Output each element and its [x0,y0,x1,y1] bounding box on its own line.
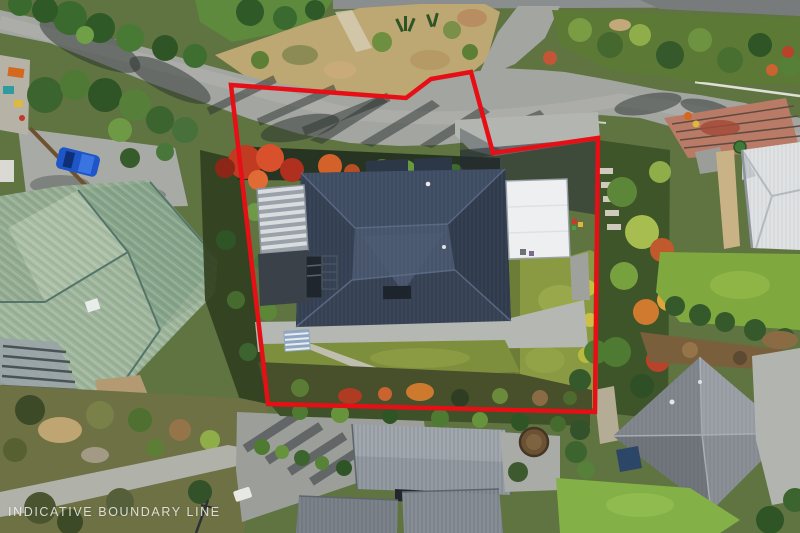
subject-property [215,112,600,410]
boundary-caption: INDICATIVE BOUNDARY LINE [8,505,221,519]
garage-roof [506,179,570,259]
dark-tank [306,256,322,298]
aerial-photo: INDICATIVE BOUNDARY LINE [0,0,800,533]
slat-pergola [257,185,308,254]
house-steps [283,329,310,352]
tarp [616,446,642,472]
